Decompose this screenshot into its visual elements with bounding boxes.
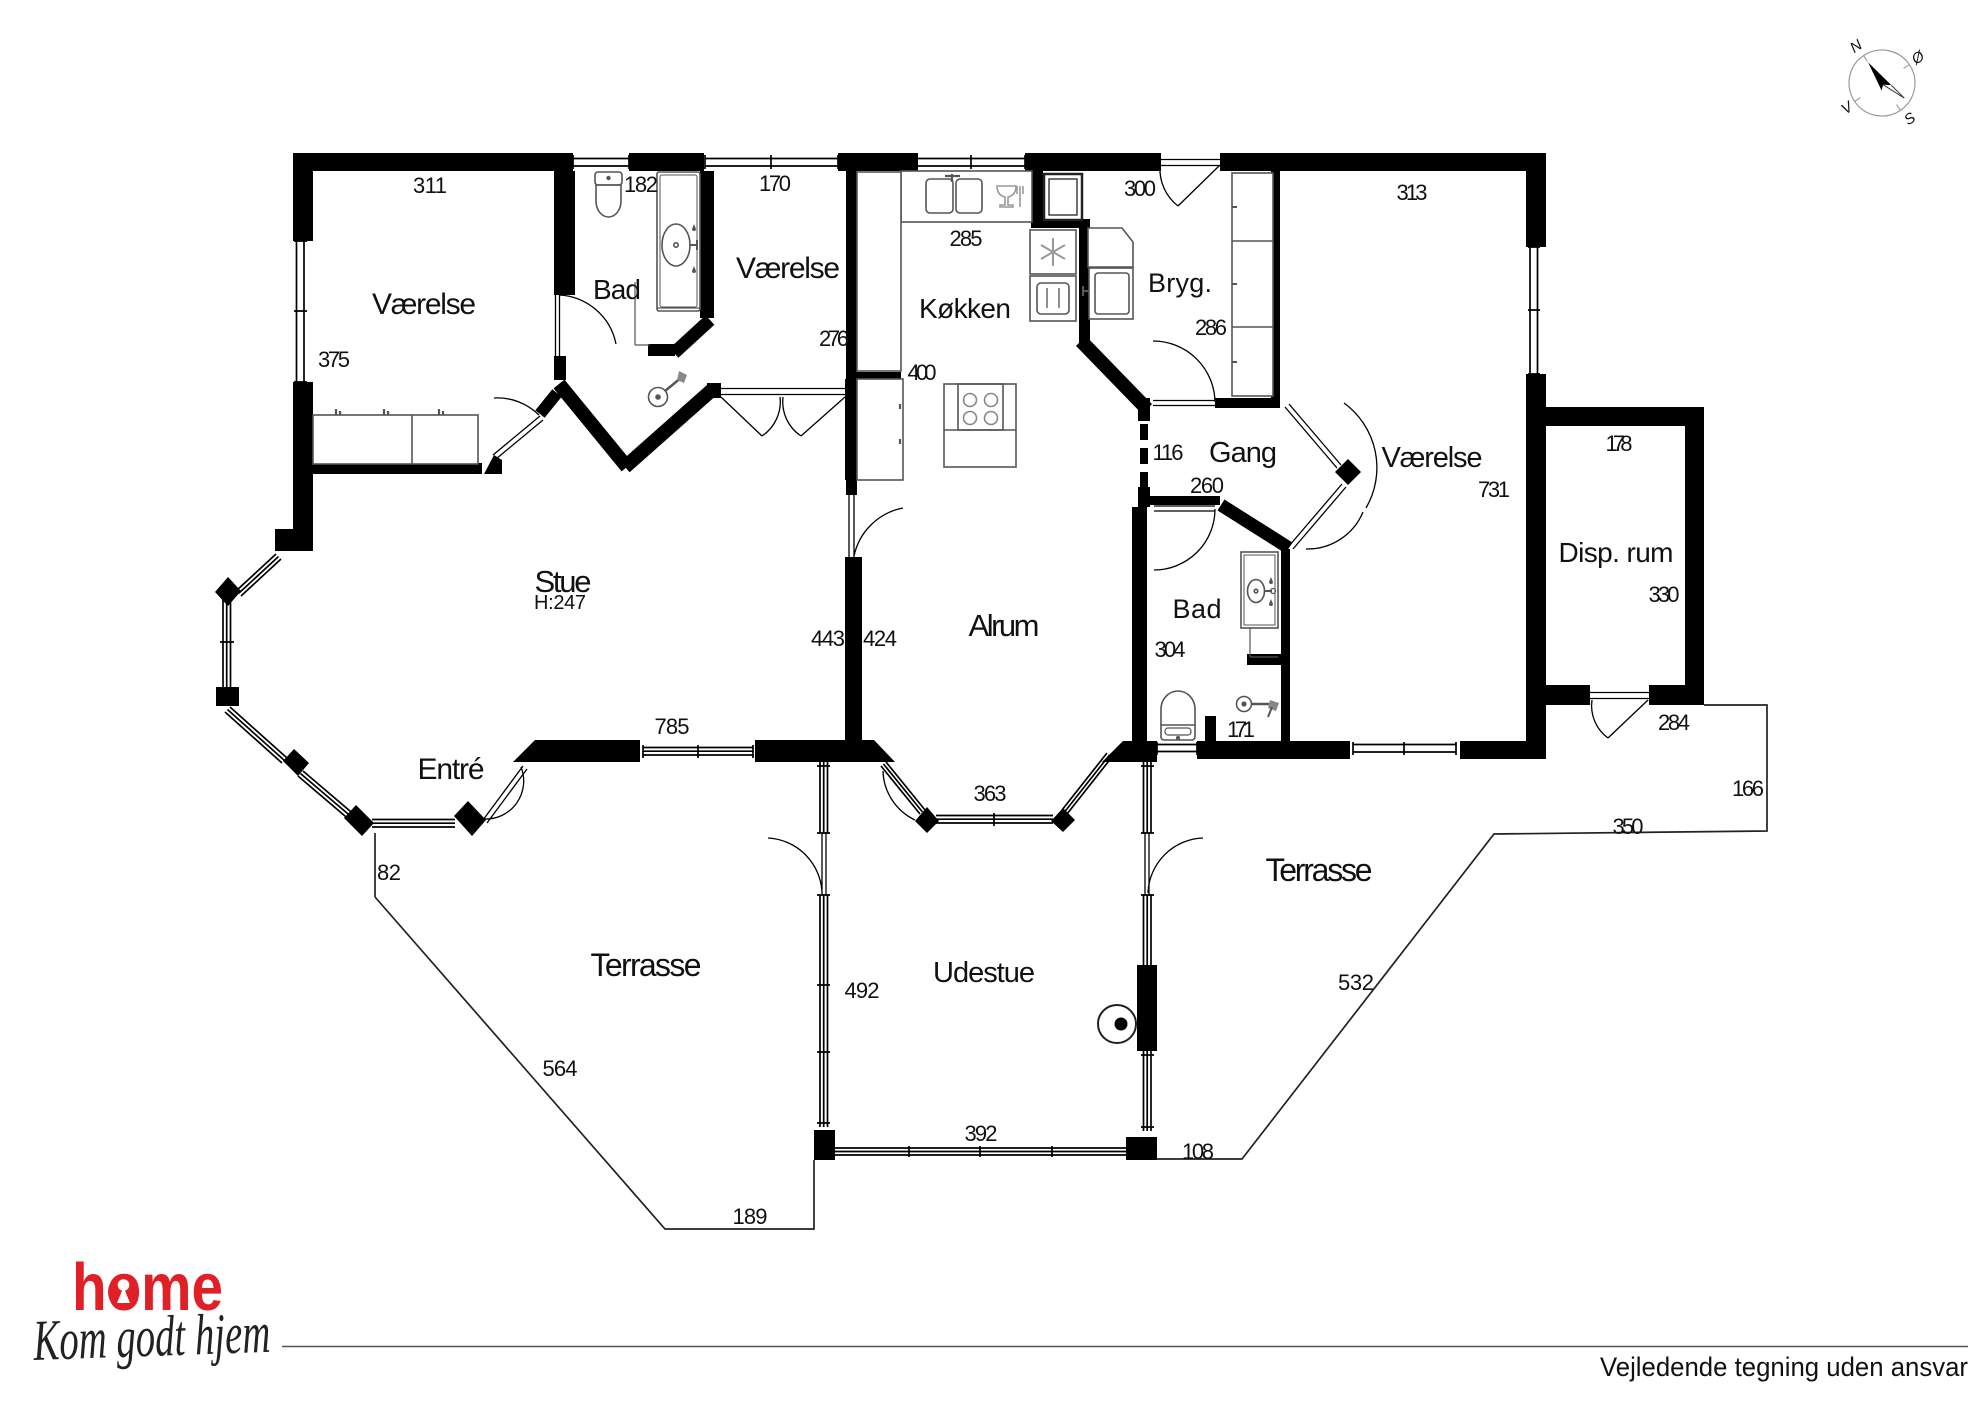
svg-text:170: 170 — [759, 171, 791, 196]
svg-text:Værelse: Værelse — [1382, 442, 1483, 474]
svg-text:H:247: H:247 — [534, 592, 586, 614]
svg-text:108: 108 — [1182, 1139, 1214, 1164]
svg-text:532: 532 — [1338, 970, 1374, 995]
svg-text:731: 731 — [1478, 477, 1510, 502]
svg-text:171: 171 — [1227, 717, 1255, 742]
svg-text:350: 350 — [1613, 814, 1644, 839]
svg-text:178: 178 — [1606, 431, 1633, 456]
svg-text:564: 564 — [543, 1056, 578, 1081]
svg-text:Udestue: Udestue — [933, 957, 1035, 989]
svg-text:Køkken: Køkken — [919, 293, 1011, 324]
svg-text:443: 443 — [811, 626, 845, 651]
svg-text:304: 304 — [1155, 637, 1186, 662]
svg-text:Kom godt hjem: Kom godt hjem — [32, 1300, 272, 1373]
svg-text:330: 330 — [1649, 582, 1680, 607]
svg-text:Terrasse: Terrasse — [1266, 852, 1373, 888]
svg-text:Værelse: Værelse — [736, 252, 840, 285]
svg-text:116: 116 — [1153, 440, 1184, 465]
svg-text:286: 286 — [1195, 315, 1227, 340]
svg-text:Terrasse: Terrasse — [591, 947, 702, 983]
svg-text:400: 400 — [908, 360, 937, 385]
svg-text:285: 285 — [950, 226, 983, 251]
svg-text:785: 785 — [655, 714, 690, 739]
svg-text:492: 492 — [845, 978, 880, 1003]
svg-text:311: 311 — [413, 173, 447, 198]
svg-text:313: 313 — [1397, 180, 1428, 205]
svg-text:375: 375 — [318, 347, 350, 372]
svg-text:424: 424 — [863, 626, 897, 651]
svg-text:166: 166 — [1732, 776, 1764, 801]
svg-text:Værelse: Værelse — [372, 288, 476, 321]
svg-text:Bryg.: Bryg. — [1148, 268, 1212, 298]
svg-text:Alrum: Alrum — [969, 608, 1040, 643]
svg-text:284: 284 — [1658, 710, 1690, 735]
svg-text:260: 260 — [1190, 473, 1224, 498]
svg-text:276: 276 — [819, 326, 849, 351]
svg-text:182: 182 — [624, 172, 658, 197]
svg-text:Disp. rum: Disp. rum — [1559, 537, 1674, 568]
svg-text:Bad: Bad — [1173, 594, 1222, 624]
svg-text:Entré: Entré — [418, 753, 485, 786]
svg-text:Vejledende tegning uden ansvar: Vejledende tegning uden ansvar — [1600, 1352, 1968, 1382]
svg-text:189: 189 — [733, 1204, 768, 1229]
svg-text:Gang: Gang — [1209, 437, 1277, 469]
svg-text:Bad: Bad — [593, 274, 641, 305]
svg-text:82: 82 — [377, 860, 401, 885]
svg-text:392: 392 — [965, 1121, 998, 1146]
svg-text:300: 300 — [1124, 176, 1156, 201]
svg-text:363: 363 — [974, 781, 1007, 806]
